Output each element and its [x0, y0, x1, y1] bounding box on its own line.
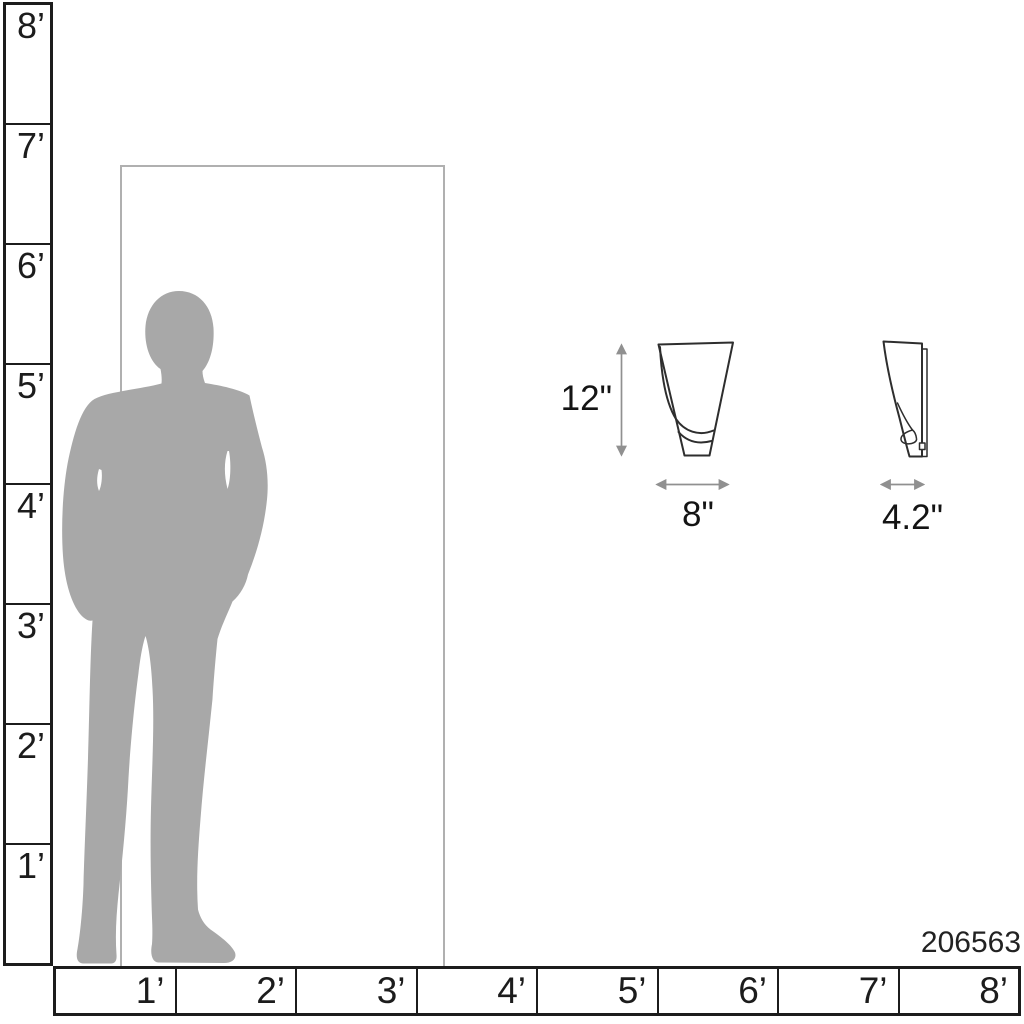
horizontal-ruler-cell: 8’: [898, 969, 1019, 1013]
ruler-label-6ft: 6’: [17, 248, 45, 284]
horizontal-ruler-cell: 2’: [175, 969, 296, 1013]
vertical-ruler-cell: 4’: [6, 483, 50, 603]
width-dimension-label: 8": [650, 497, 746, 534]
horizontal-ruler-cell: 1’: [56, 969, 175, 1013]
horizontal-ruler-cell: 4’: [416, 969, 537, 1013]
vertical-ruler-cell: 3’: [6, 603, 50, 723]
sconce-side-view-drawing: [884, 342, 928, 457]
dimension-diagram: 8’ 7’ 6’ 5’ 4’ 3’ 2’ 1’ 1’ 2’ 3’ 4’ 5’ 6…: [0, 0, 1024, 1024]
vertical-ruler-cell: 5’: [6, 363, 50, 483]
vertical-ruler: 8’ 7’ 6’ 5’ 4’ 3’ 2’ 1’: [3, 2, 53, 966]
vertical-ruler-cell: 7’: [6, 123, 50, 243]
horizontal-ruler-cell: 7’: [777, 969, 898, 1013]
horizontal-ruler-cell: 5’: [536, 969, 657, 1013]
door-outline: [120, 165, 445, 966]
ruler-label-7ft: 7’: [17, 128, 45, 164]
ruler-label-5ft: 5’: [17, 368, 45, 404]
horizontal-ruler-cell: 6’: [657, 969, 778, 1013]
horizontal-ruler: 1’ 2’ 3’ 4’ 5’ 6’ 7’ 8’: [53, 966, 1021, 1016]
vertical-ruler-cell: 6’: [6, 243, 50, 363]
depth-dimension-label: 4.2": [855, 500, 970, 537]
ruler-label-2ft: 2’: [17, 728, 45, 764]
ruler-label-3ft: 3’: [17, 608, 45, 644]
product-sku: 206563: [801, 927, 1021, 959]
height-dimension-label: 12": [524, 381, 612, 418]
vertical-ruler-cell: 2’: [6, 723, 50, 843]
ruler-label-8ft: 8’: [17, 8, 45, 44]
vertical-ruler-cell: 8’: [6, 5, 50, 123]
ruler-label-4ft: 4’: [17, 488, 45, 524]
ruler-label-1ft: 1’: [17, 848, 45, 884]
sconce-front-view-drawing: [659, 343, 734, 456]
horizontal-ruler-cell: 3’: [295, 969, 416, 1013]
vertical-ruler-cell: 1’: [6, 843, 50, 963]
pocket-detail: [97, 469, 102, 491]
